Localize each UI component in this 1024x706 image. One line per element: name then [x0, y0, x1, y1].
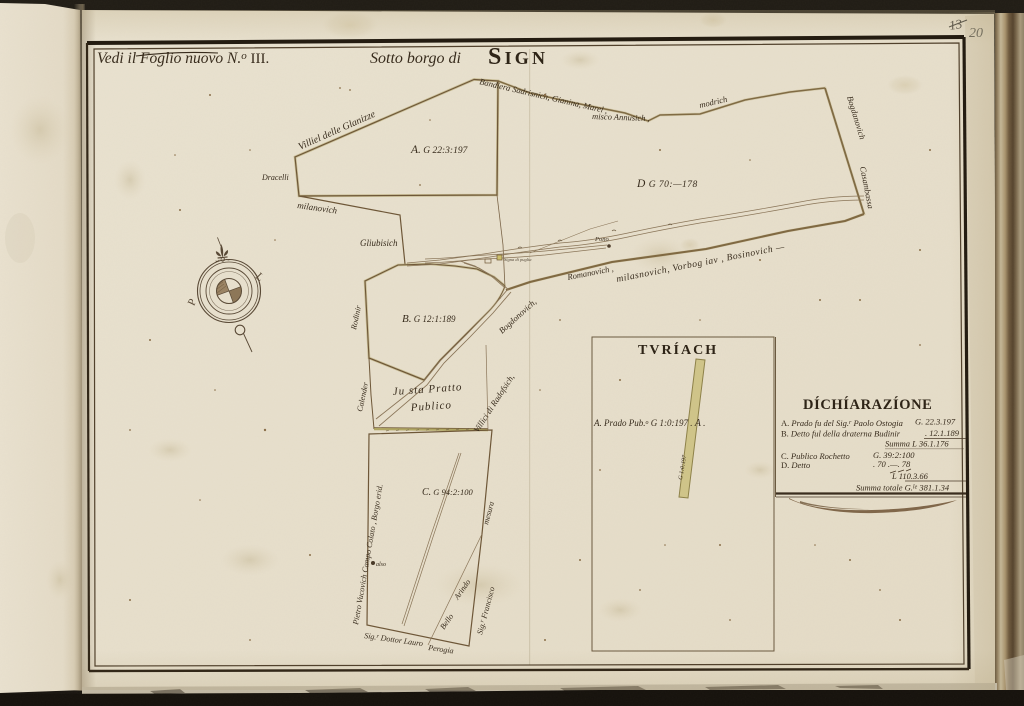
svg-text:also: also	[376, 562, 386, 568]
svg-text:20: 20	[969, 26, 983, 41]
svg-text:Signa di puglia: Signa di puglia	[504, 257, 532, 262]
svg-text:B. Detto ful della draterna Bu: B. Detto ful della draterna Budinir	[781, 429, 901, 439]
svg-text:A. G 22:3:197: A. G 22:3:197	[410, 144, 469, 156]
svg-text:DÍCHÍARAZÍONE: DÍCHÍARAZÍONE	[803, 396, 932, 413]
svg-text:D G 70:—178: D G 70:—178	[636, 178, 698, 190]
svg-text:C. G 94:2:100: C. G 94:2:100	[422, 487, 473, 498]
svg-text:B. G 12:1:189: B. G 12:1:189	[402, 313, 456, 325]
svg-text:TVRÍACH: TVRÍACH	[638, 341, 718, 358]
svg-text:A. Prado Pub.o G 1:0:197 . A .: A. Prado Pub.o G 1:0:197 . A .	[593, 418, 705, 429]
svg-text:misco Annusich ,: misco Annusich ,	[592, 111, 650, 123]
svg-text:Pono: Pono	[594, 236, 609, 243]
svg-text:L 110.3.66: L 110.3.66	[891, 471, 929, 481]
svg-text:Sotto borgo di: Sotto borgo di	[370, 50, 461, 67]
svg-text:A. Prado fu del Sig.r Paolo Os: A. Prado fu del Sig.r Paolo Ostogia	[781, 418, 903, 428]
svg-text:Dracelli: Dracelli	[261, 173, 289, 182]
svg-text:SIGN: SIGN	[488, 44, 548, 70]
svg-text:. 12.1.189: . 12.1.189	[925, 428, 960, 438]
svg-text:G. 22.3.197: G. 22.3.197	[915, 417, 956, 427]
svg-text:Summa L 36.1.176: Summa L 36.1.176	[885, 439, 949, 449]
svg-text:. 70 .—. 78: . 70 .—. 78	[873, 459, 911, 469]
svg-text:Summa totale G.le 381.1.34: Summa totale G.le 381.1.34	[856, 483, 950, 493]
svg-text:D. Detto: D. Detto	[781, 460, 810, 470]
svg-text:Gliubisich: Gliubisich	[360, 238, 398, 248]
